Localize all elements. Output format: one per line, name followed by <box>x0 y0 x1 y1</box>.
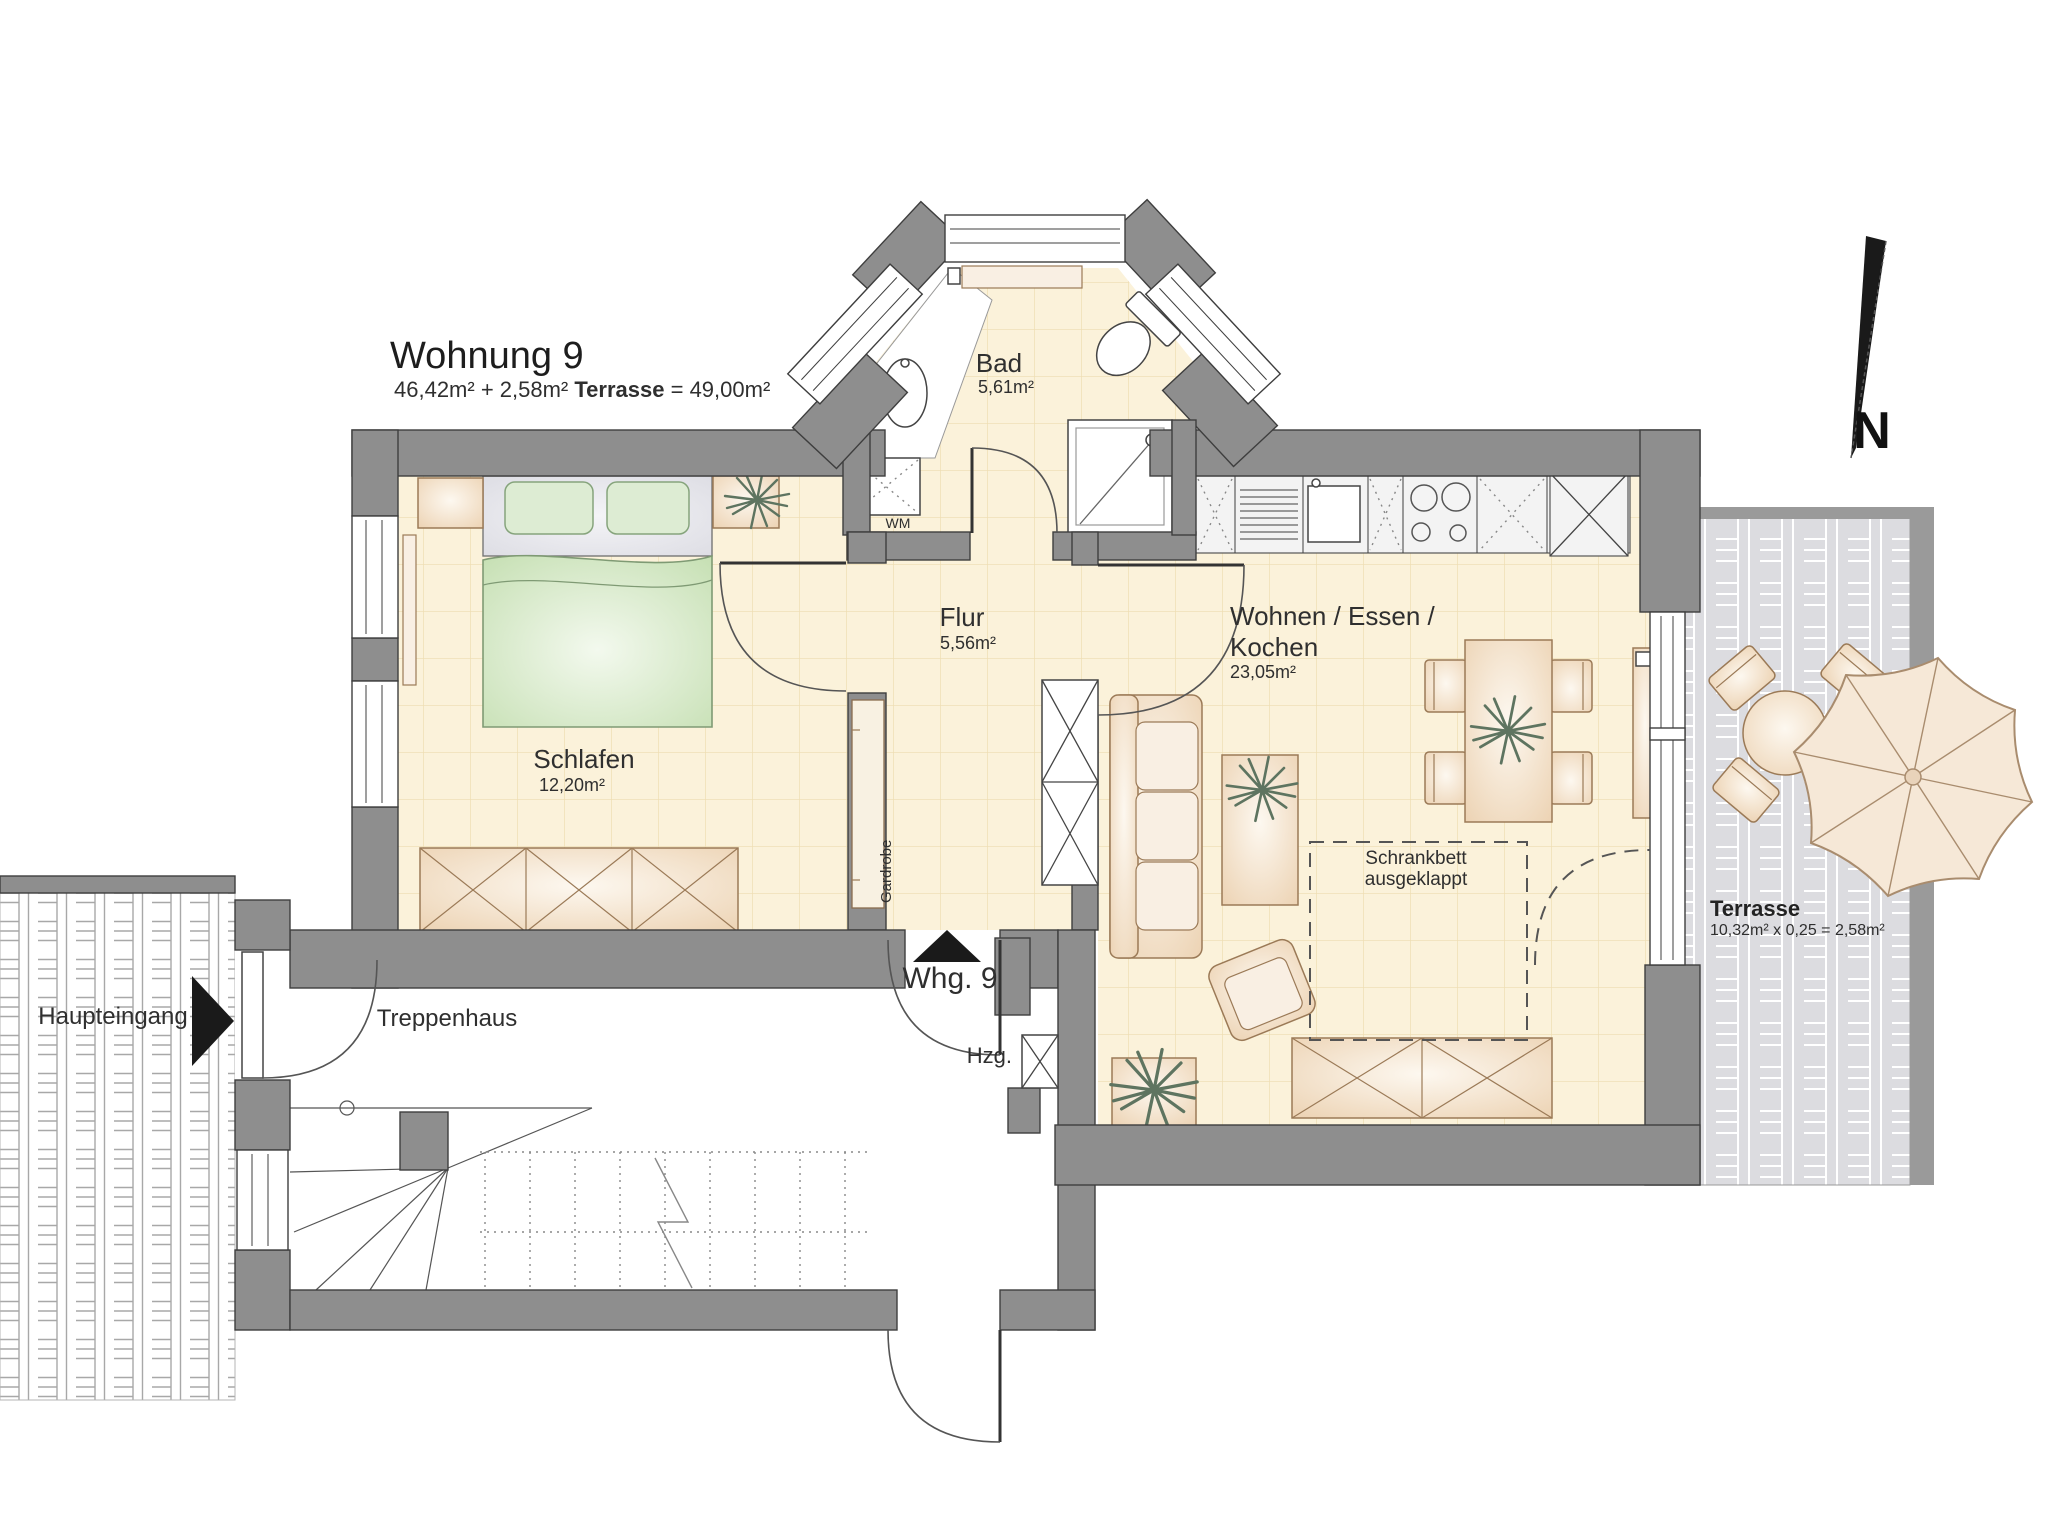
page-title: Wohnung 9 <box>390 336 584 376</box>
waschmaschine-label: WM <box>886 516 911 531</box>
sideboard <box>1292 1038 1552 1118</box>
kitchen-counter <box>1195 473 1630 556</box>
staircase <box>290 1101 870 1290</box>
garderobe-label: Gardrobe <box>879 840 895 903</box>
room-label-terrasse: Terrasse <box>1710 897 1800 920</box>
window-bad-top <box>945 215 1125 262</box>
window-terrace <box>1650 612 1685 965</box>
room-area-flur: 5,56m² <box>940 634 996 653</box>
heizung-label: Hzg. <box>940 1044 1012 1067</box>
haupteingang-label: Haupteingang <box>38 1004 187 1029</box>
north-label: N <box>1853 404 1891 459</box>
room-area-wohnen: 23,05m² <box>1230 663 1296 682</box>
page-subtitle: 46,42m² + 2,58m² Terrasse = 49,00m² <box>394 378 770 401</box>
window-treppenhaus <box>237 1150 288 1250</box>
room-label-flur: Flur <box>940 604 985 632</box>
sofa <box>1110 695 1202 958</box>
room-label-schlafen: Schlafen <box>533 746 634 774</box>
shaft-closet <box>1042 680 1098 885</box>
wardrobe-schlafen <box>420 848 738 932</box>
apartment-entrance-label: Whg. 9 <box>902 963 997 995</box>
bed <box>483 476 712 727</box>
room-label-treppenhaus: Treppenhaus <box>377 1006 518 1031</box>
window-schlafen-1 <box>352 516 398 638</box>
kitchen-sink <box>1308 486 1360 542</box>
door-rear <box>888 1330 1000 1442</box>
radiator-bad <box>962 266 1082 288</box>
lowboard <box>1222 755 1298 905</box>
room-area-schlafen: 12,20m² <box>539 776 605 795</box>
heizung-box <box>1022 1035 1058 1088</box>
nightstand-left <box>418 478 483 528</box>
room-label-wohnen-2: Kochen <box>1230 634 1318 662</box>
room-label-bad: Bad <box>976 350 1022 378</box>
entrance-door-leaf <box>242 952 263 1078</box>
window-schlafen-2 <box>352 681 398 807</box>
entrance-paving <box>0 893 235 1400</box>
floorplan-drawing <box>0 0 2048 1536</box>
room-label-wohnen-1: Wohnen / Essen / <box>1230 603 1435 631</box>
subtitle-terrasse: Terrasse <box>574 377 664 402</box>
radiator-bedroom <box>403 535 416 685</box>
schrankbett-label-1: Schrankbett <box>1365 849 1466 869</box>
schrankbett-label-2: ausgeklappt <box>1365 870 1467 890</box>
subtitle-area: 46,42m² + 2,58m² <box>394 377 568 402</box>
room-area-terrasse: 10,32m² x 0,25 = 2,58m² <box>1710 923 1885 940</box>
subtitle-total: = 49,00m² <box>671 377 771 402</box>
floorplan-page: Wohnung 9 46,42m² + 2,58m² Terrasse = 49… <box>0 0 2048 1536</box>
room-area-bad: 5,61m² <box>978 378 1034 397</box>
